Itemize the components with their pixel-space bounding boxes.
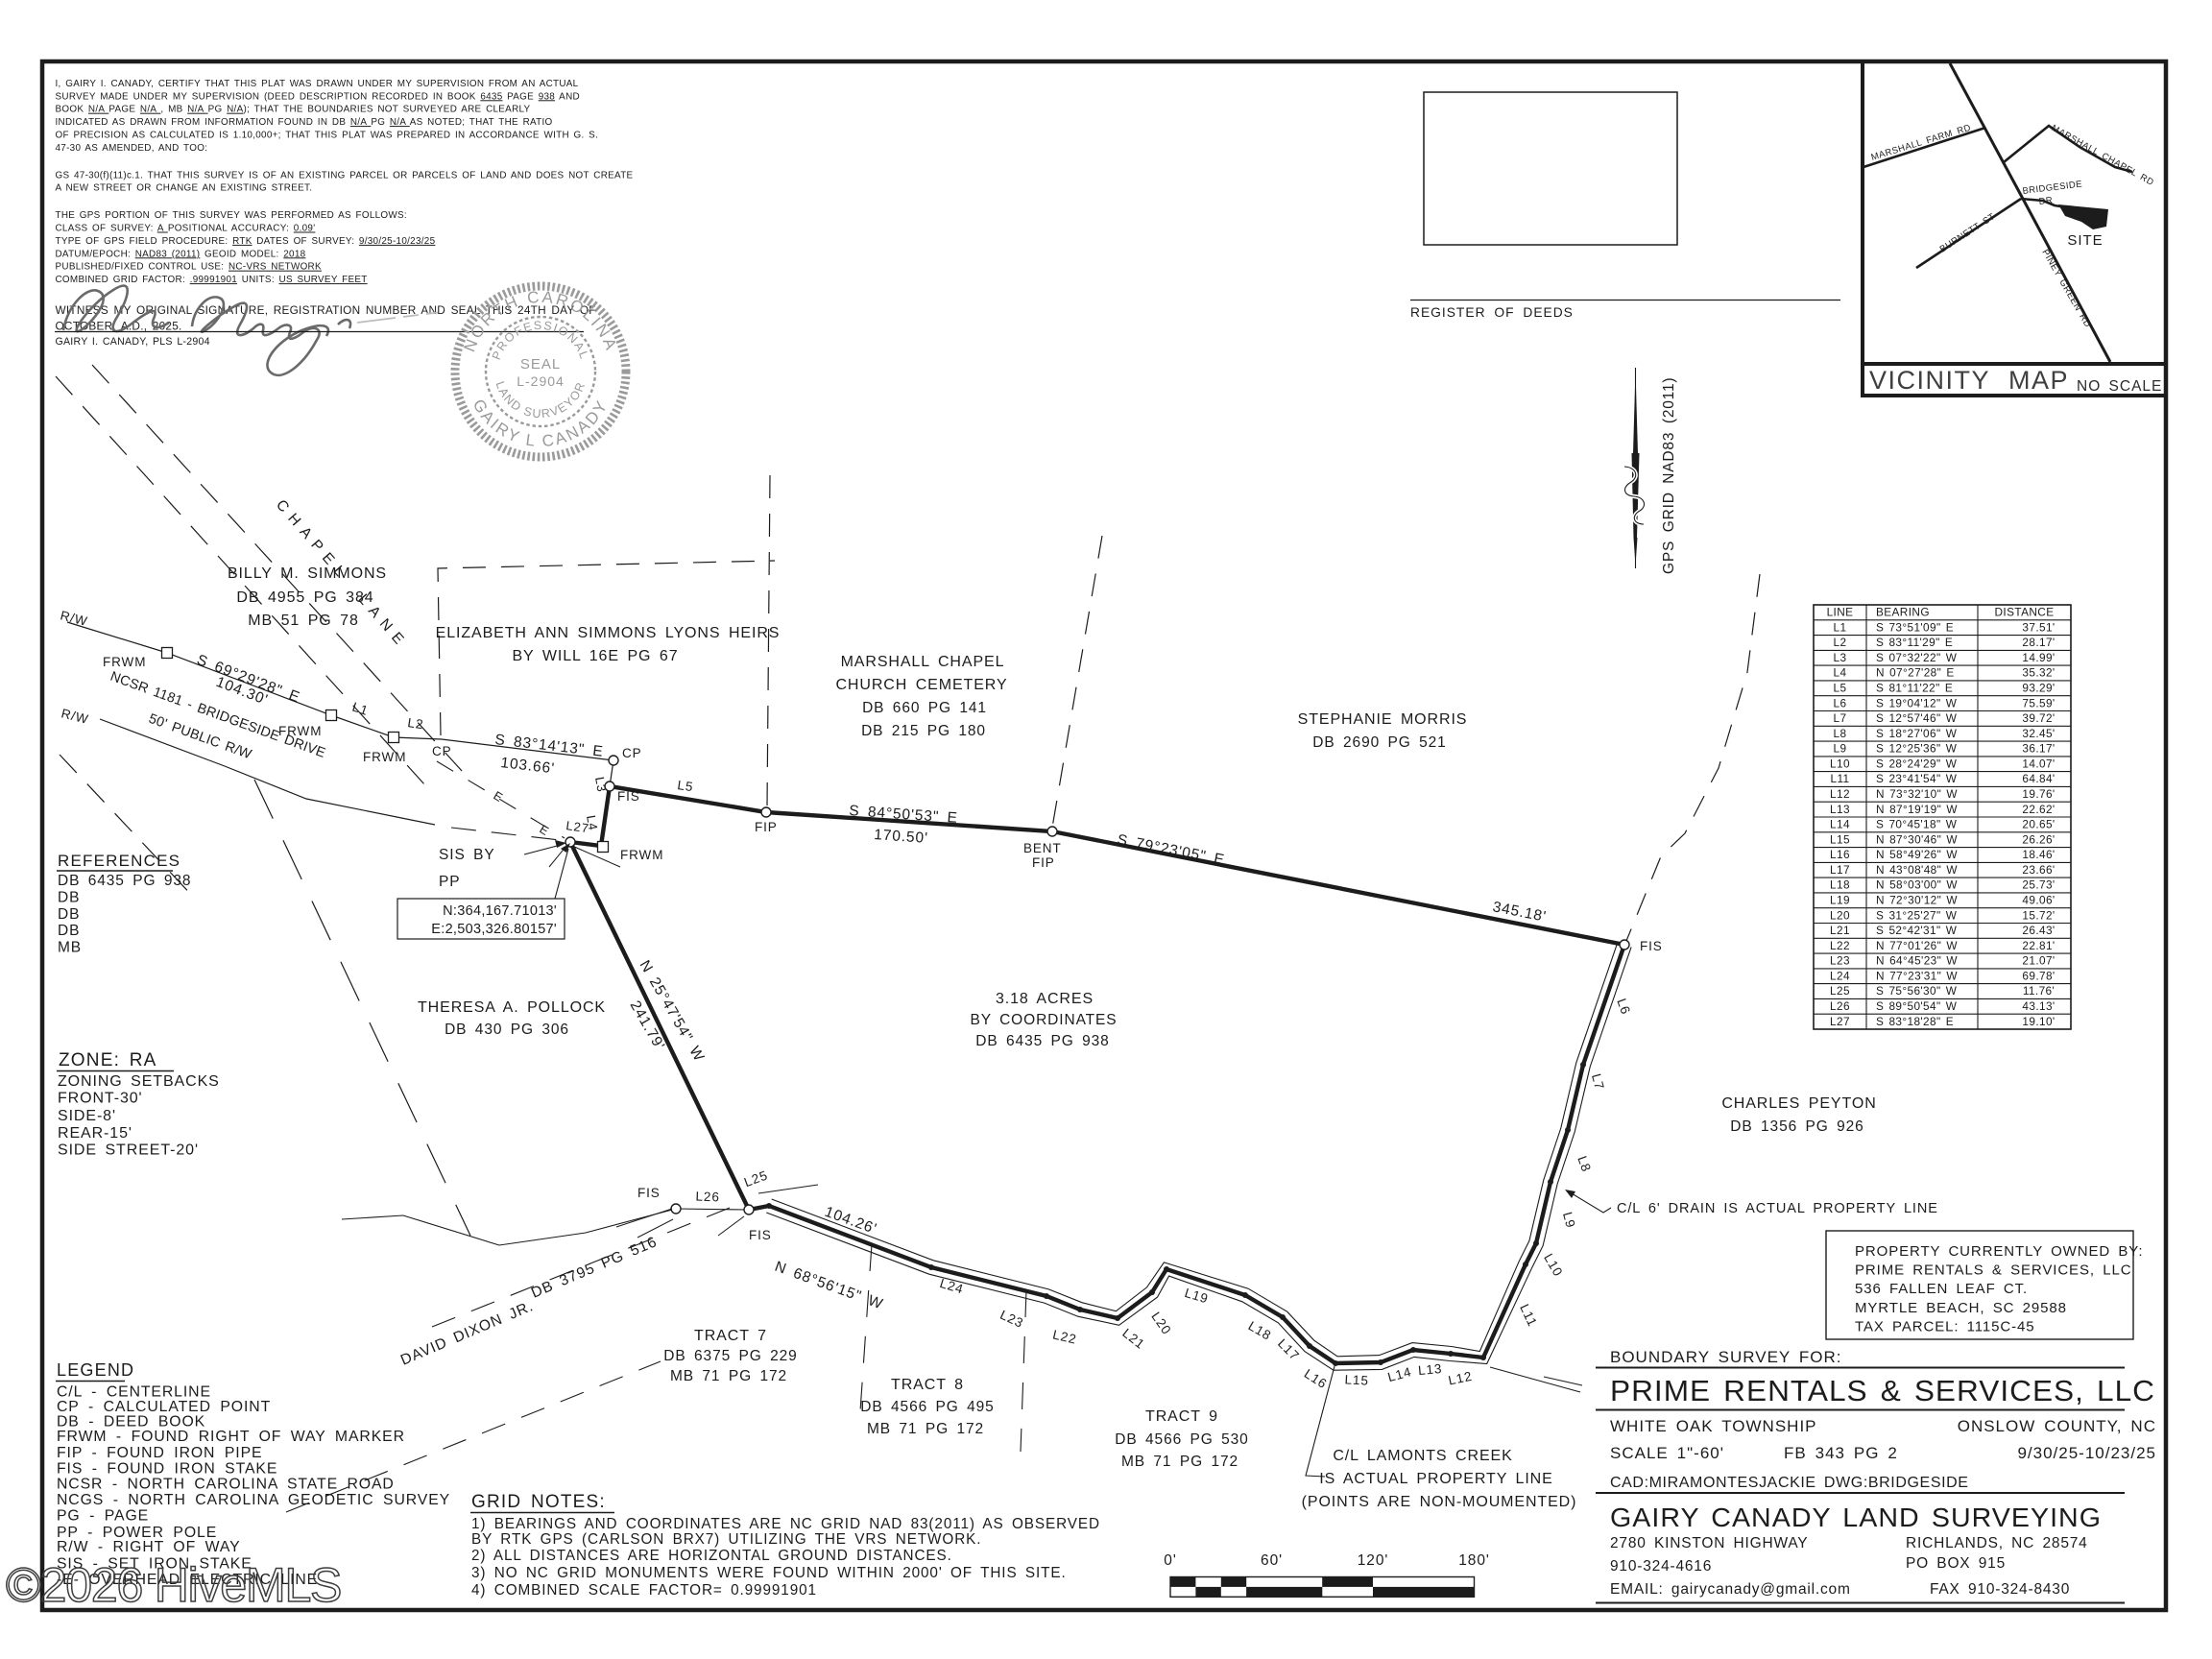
svg-text:CP - CALCULATED POINT: CP - CALCULATED POINT [57, 1399, 271, 1415]
svg-text:R/W - RIGHT OF WAY: R/W - RIGHT OF WAY [57, 1539, 241, 1555]
svg-text:WHITE OAK TOWNSHIP: WHITE OAK TOWNSHIP [1610, 1417, 1817, 1435]
svg-text:DB: DB [58, 906, 80, 923]
svg-text:L16: L16 [1830, 848, 1850, 861]
svg-text:PG - PAGE: PG - PAGE [57, 1508, 149, 1525]
svg-text:S 81°11'22" E: S 81°11'22" E [1876, 682, 1953, 695]
svg-text:SEAL: SEAL [520, 356, 561, 373]
svg-text:S 19°04'12" W: S 19°04'12" W [1876, 696, 1958, 709]
svg-text:26.26': 26.26' [2022, 832, 2055, 846]
svg-text:N:364,167.71013': N:364,167.71013' [443, 903, 557, 919]
svg-text:DR: DR [2038, 195, 2054, 207]
svg-text:SIDE-8': SIDE-8' [58, 1108, 116, 1124]
svg-text:GAIRY CANADY LAND SURVEYING: GAIRY CANADY LAND SURVEYING [1610, 1503, 2102, 1532]
svg-text:L13: L13 [1417, 1361, 1442, 1378]
svg-text:SITE: SITE [2067, 232, 2103, 249]
svg-text:MARSHALL CHAPEL: MARSHALL CHAPEL [841, 654, 1005, 670]
svg-text:VICINITY: VICINITY [1869, 366, 1990, 395]
svg-text:19.76': 19.76' [2022, 787, 2055, 801]
svg-text:93.29': 93.29' [2022, 682, 2055, 695]
svg-text:4) COMBINED SCALE FACTOR= 0.99: 4) COMBINED SCALE FACTOR= 0.99991901 [471, 1582, 817, 1599]
svg-text:TYPE OF GPS FIELD PROCEDURE: R: TYPE OF GPS FIELD PROCEDURE: RTK DATES O… [56, 236, 436, 247]
svg-text:N 64°45'23" W: N 64°45'23" W [1876, 954, 1958, 968]
svg-text:FIP - FOUND IRON PIPE: FIP - FOUND IRON PIPE [57, 1445, 262, 1461]
svg-text:E:2,503,326.80157': E:2,503,326.80157' [431, 922, 557, 937]
svg-text:N 87°30'46" W: N 87°30'46" W [1876, 832, 1958, 846]
svg-text:THERESA A. POLLOCK: THERESA A. POLLOCK [418, 999, 606, 1016]
svg-text:FIS: FIS [1640, 939, 1663, 953]
svg-text:DB 1356 PG 926: DB 1356 PG 926 [1730, 1118, 1863, 1135]
svg-text:14.99': 14.99' [2022, 651, 2055, 664]
svg-text:FB 343 PG 2: FB 343 PG 2 [1784, 1444, 1898, 1462]
svg-text:S 12°57'46" W: S 12°57'46" W [1876, 711, 1958, 725]
svg-text:COMBINED GRID FACTOR: .9999190: COMBINED GRID FACTOR: .99991901 UNITS: U… [56, 275, 368, 285]
svg-text:N 73°32'10" W: N 73°32'10" W [1876, 787, 1958, 801]
svg-text:CHURCH CEMETERY: CHURCH CEMETERY [835, 677, 1007, 693]
svg-text:DB 215 PG 180: DB 215 PG 180 [861, 723, 986, 739]
svg-text:CAD:MIRAMONTESJACKIE DWG:BRIDG: CAD:MIRAMONTESJACKIE DWG:BRIDGESIDE [1610, 1475, 1969, 1491]
svg-text:S 12°25'36" W: S 12°25'36" W [1876, 742, 1958, 756]
svg-text:28.17': 28.17' [2022, 636, 2055, 649]
svg-text:GRID NOTES:: GRID NOTES: [471, 1492, 606, 1512]
svg-text:EMAIL: gairycanady@gmail.com: EMAIL: gairycanady@gmail.com [1610, 1581, 1851, 1598]
svg-text:0': 0' [1164, 1552, 1176, 1569]
svg-text:N 58°49'26" W: N 58°49'26" W [1876, 848, 1958, 861]
svg-text:L19: L19 [1830, 894, 1850, 907]
svg-text:FIS - FOUND IRON STAKE: FIS - FOUND IRON STAKE [57, 1461, 277, 1478]
svg-text:L4: L4 [584, 814, 601, 832]
svg-text:DB: DB [58, 923, 80, 939]
svg-text:S 07°32'22" W: S 07°32'22" W [1876, 651, 1958, 664]
svg-text:L26: L26 [1830, 999, 1850, 1013]
svg-text:C/L 6' DRAIN IS ACTUAL PROPERT: C/L 6' DRAIN IS ACTUAL PROPERTY LINE [1617, 1201, 1938, 1216]
svg-text:S 83°18'28" E: S 83°18'28" E [1876, 1015, 1954, 1028]
svg-text:INDICATED AS DRAWN FROM INFORM: INDICATED AS DRAWN FROM INFORMATION FOUN… [56, 117, 553, 128]
svg-text:NCSR - NORTH CAROLINA STATE RO: NCSR - NORTH CAROLINA STATE ROAD [57, 1477, 395, 1493]
svg-text:S 70°45'18" W: S 70°45'18" W [1876, 818, 1958, 831]
svg-text:60': 60' [1261, 1552, 1283, 1569]
svg-text:2) ALL DISTANCES ARE HORIZONTA: 2) ALL DISTANCES ARE HORIZONTAL GROUND D… [471, 1548, 952, 1564]
svg-text:C/L LAMONTS CREEK: C/L LAMONTS CREEK [1333, 1448, 1512, 1464]
svg-text:S 18°27'06" W: S 18°27'06" W [1876, 727, 1958, 740]
svg-text:OF PRECISION AS CALCULATED IS: OF PRECISION AS CALCULATED IS 1.10,000+;… [56, 131, 599, 141]
svg-text:910-324-4616: 910-324-4616 [1610, 1558, 1712, 1575]
svg-text:22.62': 22.62' [2022, 803, 2055, 816]
svg-text:DB - DEED BOOK: DB - DEED BOOK [57, 1414, 205, 1431]
svg-text:11.76': 11.76' [2023, 984, 2055, 998]
svg-text:S 31°25'27" W: S 31°25'27" W [1876, 908, 1958, 922]
svg-text:37.51': 37.51' [2022, 620, 2055, 634]
svg-text:FAX 910-324-8430: FAX 910-324-8430 [1930, 1581, 2070, 1598]
svg-text:DB 4566 PG 530: DB 4566 PG 530 [1115, 1431, 1248, 1448]
svg-text:BILLY M. SIMMONS: BILLY M. SIMMONS [228, 565, 387, 582]
svg-text:L24: L24 [1830, 969, 1850, 982]
svg-text:L8: L8 [1834, 727, 1847, 740]
svg-text:FRWM: FRWM [278, 724, 322, 738]
svg-text:REFERENCES: REFERENCES [58, 852, 180, 870]
svg-text:ZONING SETBACKS: ZONING SETBACKS [58, 1073, 220, 1090]
svg-text:I, GAIRY I. CANADY, CERTIFY: I, GAIRY I. CANADY, CERTIFY THAT THIS PL… [56, 79, 579, 89]
svg-text:SCALE 1"-60': SCALE 1"-60' [1610, 1444, 1724, 1462]
svg-text:64.84': 64.84' [2022, 772, 2055, 785]
svg-text:L3: L3 [1834, 651, 1847, 664]
svg-text:L15: L15 [1344, 1372, 1369, 1387]
svg-text:NCGS - NORTH CAROLINA GEODETIC: NCGS - NORTH CAROLINA GEODETIC SURVEY [57, 1492, 450, 1508]
svg-text:NO SCALE: NO SCALE [2077, 378, 2162, 395]
svg-text:L21: L21 [1830, 924, 1850, 937]
svg-text:19.10': 19.10' [2022, 1015, 2055, 1028]
svg-text:L4: L4 [1834, 666, 1847, 680]
svg-text:PROPERTY CURRENTLY OWNED BY:: PROPERTY CURRENTLY OWNED BY: [1855, 1243, 2143, 1260]
svg-text:S 83°11'29" E: S 83°11'29" E [1876, 636, 1953, 649]
svg-text:DB 6435 PG 938: DB 6435 PG 938 [58, 873, 191, 889]
svg-text:BOUNDARY SURVEY FOR:: BOUNDARY SURVEY FOR: [1610, 1348, 1841, 1366]
svg-text:PRIME RENTALS & SERVICES, LLC: PRIME RENTALS & SERVICES, LLC [1610, 1374, 2155, 1407]
svg-text:536 FALLEN LEAF CT.: 536 FALLEN LEAF CT. [1855, 1281, 2028, 1297]
svg-text:DB 430 PG 306: DB 430 PG 306 [445, 1022, 569, 1038]
svg-text:L5: L5 [677, 778, 695, 794]
svg-text:47-30 AS AMENDED, AND TOO:: 47-30 AS AMENDED, AND TOO: [56, 143, 208, 154]
svg-text:MB 71 PG 172: MB 71 PG 172 [867, 1421, 984, 1437]
svg-text:BY WILL 16E PG 67: BY WILL 16E PG 67 [512, 648, 678, 664]
svg-text:49.06': 49.06' [2022, 894, 2055, 907]
svg-text:14.07': 14.07' [2022, 757, 2055, 770]
svg-text:CP: CP [622, 746, 642, 760]
svg-text:L1: L1 [1834, 620, 1847, 634]
svg-text:SIS BY: SIS BY [439, 847, 495, 863]
svg-text:CLASS OF SURVEY: A POS: CLASS OF SURVEY: A POSITIONAL ACCURACY: … [56, 224, 316, 234]
svg-text:L15: L15 [1830, 832, 1850, 846]
svg-text:FRWM: FRWM [103, 655, 146, 669]
svg-text:S 89°50'54" W: S 89°50'54" W [1876, 999, 1958, 1013]
svg-text:15.72': 15.72' [2022, 908, 2055, 922]
svg-text:A NEW STREET OR CHANGE AN EXIS: A NEW STREET OR CHANGE AN EXISTING STREE… [56, 183, 313, 194]
svg-text:THE GPS PORTION OF THIS SURVEY: THE GPS PORTION OF THIS SURVEY WAS PERFO… [56, 210, 407, 221]
svg-text:DISTANCE: DISTANCE [1995, 606, 2055, 619]
svg-text:FIS: FIS [637, 1186, 661, 1200]
svg-text:GS 47-30(f)(11)c.1. THAT THIS: GS 47-30(f)(11)c.1. THAT THIS SURVEY IS … [56, 170, 634, 180]
svg-text:L12: L12 [1830, 787, 1850, 801]
svg-text:FIS: FIS [617, 789, 640, 804]
svg-text:L13: L13 [1830, 803, 1850, 816]
svg-text:PP: PP [439, 874, 460, 890]
svg-text:22.81': 22.81' [2022, 939, 2055, 952]
svg-text:2780 KINSTON HIGHWAY: 2780 KINSTON HIGHWAY [1610, 1535, 1808, 1551]
svg-text:FRWM: FRWM [620, 848, 663, 862]
svg-text:DB 660 PG 141: DB 660 PG 141 [862, 700, 987, 716]
svg-text:©2026 HiveMLS: ©2026 HiveMLS [6, 1558, 341, 1612]
svg-text:BOOK N/A PAGE N/A , MB N/A: BOOK N/A PAGE N/A , MB N/A PG N/A); THAT… [56, 105, 531, 115]
svg-text:32.45': 32.45' [2022, 727, 2055, 740]
svg-text:FIP: FIP [1032, 855, 1055, 870]
svg-text:L7: L7 [1834, 711, 1847, 725]
svg-text:TRACT 8: TRACT 8 [891, 1377, 964, 1393]
svg-text:N 07°27'28" E: N 07°27'28" E [1876, 666, 1955, 680]
svg-text:TAX PARCEL: 1115C-45: TAX PARCEL: 1115C-45 [1855, 1318, 2035, 1334]
svg-text:S 23°41'54" W: S 23°41'54" W [1876, 772, 1958, 785]
svg-text:9/30/25-10/23/25: 9/30/25-10/23/25 [2017, 1444, 2156, 1462]
svg-text:BENT: BENT [1023, 841, 1062, 855]
svg-text:S 52°42'31" W: S 52°42'31" W [1876, 924, 1958, 937]
svg-text:DB: DB [58, 889, 80, 905]
svg-text:MYRTLE BEACH, SC 29588: MYRTLE BEACH, SC 29588 [1855, 1300, 2067, 1316]
svg-text:FRWM: FRWM [363, 750, 406, 764]
svg-text:N 77°23'31" W: N 77°23'31" W [1876, 969, 1958, 982]
svg-text:N 77°01'26" W: N 77°01'26" W [1876, 939, 1958, 952]
svg-text:35.32': 35.32' [2022, 666, 2055, 680]
svg-text:L2: L2 [407, 715, 425, 732]
svg-text:DATUM/EPOCH: NAD83 (2011) GE: DATUM/EPOCH: NAD83 (2011) GEOID MODEL: 2… [56, 249, 306, 259]
svg-text:39.72': 39.72' [2022, 711, 2055, 725]
svg-text:120': 120' [1358, 1552, 1388, 1569]
svg-text:75.59': 75.59' [2022, 696, 2055, 709]
svg-text:BY RTK GPS (CARLSON BRX7) UTIL: BY RTK GPS (CARLSON BRX7) UTILIZING THE … [471, 1531, 981, 1548]
svg-text:TRACT 9: TRACT 9 [1145, 1408, 1218, 1425]
svg-text:SURVEY MADE UNDER MY SUPERVISI: SURVEY MADE UNDER MY SUPERVISION (DEED D… [56, 91, 580, 102]
svg-text:L25: L25 [1830, 984, 1850, 998]
svg-text:DB 4566 PG 495: DB 4566 PG 495 [860, 1399, 994, 1415]
svg-text:GPS GRID NAD83 (2011): GPS GRID NAD83 (2011) [1661, 377, 1677, 574]
svg-text:23.66': 23.66' [2022, 863, 2055, 877]
svg-text:PO BOX 915: PO BOX 915 [1906, 1555, 2006, 1572]
svg-text:BEARING: BEARING [1876, 606, 1930, 619]
svg-text:L22: L22 [1830, 939, 1850, 952]
svg-text:L-2904: L-2904 [517, 373, 565, 389]
svg-text:N 72°30'12" W: N 72°30'12" W [1876, 894, 1958, 907]
svg-text:L6: L6 [1834, 696, 1847, 709]
svg-text:N 87°19'19" W: N 87°19'19" W [1876, 803, 1958, 816]
svg-text:25.73': 25.73' [2022, 878, 2055, 892]
svg-text:N 58°03'00" W: N 58°03'00" W [1876, 878, 1958, 892]
svg-text:1) BEARINGS AND COORDINATES AR: 1) BEARINGS AND COORDINATES ARE NC GRID … [471, 1516, 1100, 1532]
svg-text:FRWM - FOUND RIGHT OF WAY MARK: FRWM - FOUND RIGHT OF WAY MARKER [57, 1429, 405, 1445]
svg-text:MB: MB [58, 940, 82, 956]
svg-text:L26: L26 [695, 1190, 720, 1205]
svg-text:3.18 ACRES: 3.18 ACRES [996, 991, 1094, 1007]
svg-text:18.46': 18.46' [2022, 848, 2055, 861]
svg-text:MB 71 PG 172: MB 71 PG 172 [670, 1368, 787, 1384]
svg-text:26.43': 26.43' [2022, 924, 2055, 937]
svg-text:C/L - CENTERLINE: C/L - CENTERLINE [57, 1384, 211, 1401]
svg-text:(POINTS ARE NON-MOUMENTED): (POINTS ARE NON-MOUMENTED) [1302, 1494, 1577, 1510]
svg-text:L3: L3 [592, 776, 610, 794]
svg-text:FIS: FIS [749, 1228, 772, 1242]
svg-text:3) NO NC GRID MONUMENTS WERE F: 3) NO NC GRID MONUMENTS WERE FOUND WITHI… [471, 1565, 1067, 1581]
svg-text:L10: L10 [1830, 757, 1850, 770]
svg-text:GAIRY I. CANADY, PLS L-2904: GAIRY I. CANADY, PLS L-2904 [56, 336, 210, 348]
svg-text:DB 6435 PG 938: DB 6435 PG 938 [975, 1033, 1109, 1049]
svg-text:20.65': 20.65' [2022, 818, 2055, 831]
svg-text:S 28°24'29" W: S 28°24'29" W [1876, 757, 1958, 770]
svg-text:FRONT-30': FRONT-30' [58, 1091, 143, 1107]
svg-text:PUBLISHED/FIXED CONTROL USE: N: PUBLISHED/FIXED CONTROL USE: NC-VRS NETW… [56, 262, 322, 273]
svg-text:CHARLES PEYTON: CHARLES PEYTON [1721, 1095, 1876, 1112]
svg-text:DB 2690 PG 521: DB 2690 PG 521 [1312, 734, 1446, 751]
svg-text:S 73°51'09" E: S 73°51'09" E [1876, 620, 1954, 634]
svg-text:BY COORDINATES: BY COORDINATES [970, 1012, 1117, 1028]
svg-text:DB 4955 PG 384: DB 4955 PG 384 [236, 589, 373, 606]
svg-text:MAP: MAP [2008, 366, 2069, 395]
svg-text:TRACT 7: TRACT 7 [694, 1328, 767, 1344]
svg-text:ZONE: RA: ZONE: RA [59, 1050, 157, 1070]
svg-text:LEGEND: LEGEND [57, 1360, 134, 1380]
svg-text:21.07': 21.07' [2022, 954, 2055, 968]
svg-text:MB 51 PG 78: MB 51 PG 78 [248, 613, 359, 629]
svg-text:IS ACTUAL PROPERTY LINE: IS ACTUAL PROPERTY LINE [1319, 1471, 1552, 1487]
svg-text:FIP: FIP [755, 820, 778, 834]
svg-text:MB 71 PG 172: MB 71 PG 172 [1121, 1454, 1238, 1470]
svg-text:S 75°56'30" W: S 75°56'30" W [1876, 984, 1958, 998]
svg-text:STEPHANIE MORRIS: STEPHANIE MORRIS [1298, 711, 1468, 728]
svg-text:L23: L23 [1830, 954, 1850, 968]
svg-text:L9: L9 [1834, 742, 1847, 756]
svg-text:L18: L18 [1830, 878, 1850, 892]
svg-text:REGISTER OF DEEDS: REGISTER OF DEEDS [1410, 305, 1574, 320]
svg-text:DB 6375 PG 229: DB 6375 PG 229 [663, 1348, 797, 1364]
svg-text:L14: L14 [1830, 818, 1850, 831]
svg-text:69.78': 69.78' [2022, 969, 2055, 982]
svg-text:N 43°08'48" W: N 43°08'48" W [1876, 863, 1958, 877]
svg-text:REAR-15': REAR-15' [58, 1125, 132, 1142]
svg-text:SIDE STREET-20': SIDE STREET-20' [58, 1142, 199, 1159]
svg-text:L2: L2 [1834, 636, 1847, 649]
svg-text:CP: CP [432, 744, 452, 758]
svg-text:L5: L5 [1834, 682, 1847, 695]
svg-text:RICHLANDS, NC 28574: RICHLANDS, NC 28574 [1906, 1535, 2088, 1551]
svg-text:L11: L11 [1830, 772, 1849, 785]
svg-text:L20: L20 [1830, 908, 1850, 922]
svg-text:ONSLOW COUNTY, NC: ONSLOW COUNTY, NC [1958, 1417, 2156, 1435]
svg-text:36.17': 36.17' [2022, 742, 2055, 756]
svg-text:LINE: LINE [1827, 606, 1854, 619]
svg-text:PRIME RENTALS & SERVICES, LLC: PRIME RENTALS & SERVICES, LLC [1855, 1262, 2131, 1279]
svg-text:L17: L17 [1830, 863, 1850, 877]
svg-text:L27: L27 [1830, 1015, 1850, 1028]
svg-text:180': 180' [1458, 1552, 1489, 1569]
svg-text:ELIZABETH ANN SIMMONS LYONS HE: ELIZABETH ANN SIMMONS LYONS HEIRS [436, 625, 781, 641]
svg-text:43.13': 43.13' [2022, 999, 2055, 1013]
